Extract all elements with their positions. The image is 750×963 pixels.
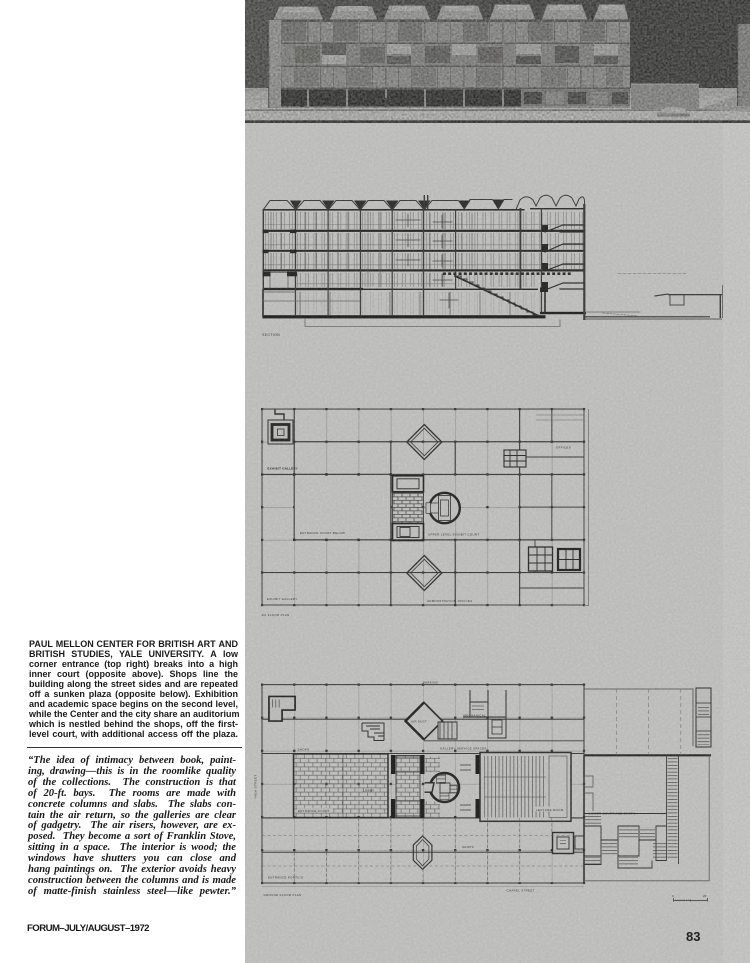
svg-text:MECHANICAL: MECHANICAL bbox=[464, 713, 486, 717]
svg-text:CHAPEL STREET: CHAPEL STREET bbox=[507, 888, 535, 892]
svg-text:ADMINISTRATION OFFICES: ADMINISTRATION OFFICES bbox=[427, 599, 473, 603]
svg-text:AIR DUCT: AIR DUCT bbox=[411, 720, 427, 724]
svg-text:PARKING: PARKING bbox=[423, 680, 439, 684]
svg-text:UPPER LEVEL EXHIBIT COURT: UPPER LEVEL EXHIBIT COURT bbox=[428, 533, 479, 537]
svg-text:HIGH STREET: HIGH STREET bbox=[254, 774, 258, 798]
svg-text:ENTRANCE COURT BELOW: ENTRANCE COURT BELOW bbox=[300, 531, 345, 535]
svg-text:0: 0 bbox=[672, 894, 674, 898]
svg-text:GALLERY SERVICE SPACES: GALLERY SERVICE SPACES bbox=[440, 747, 487, 751]
svg-text:LECTURE ROOM: LECTURE ROOM bbox=[536, 808, 564, 812]
svg-text:SECTION: SECTION bbox=[262, 333, 280, 337]
svg-text:EXHIBIT GALLERY: EXHIBIT GALLERY bbox=[268, 467, 299, 471]
svg-text:OFFICES: OFFICES bbox=[556, 446, 571, 450]
svg-text:GROUND FLOOR PLAN: GROUND FLOOR PLAN bbox=[264, 893, 302, 897]
svg-text:LOWER COURT AND SHOPS: LOWER COURT AND SHOPS bbox=[589, 812, 636, 816]
svg-text:4th FLOOR PLAN: 4th FLOOR PLAN bbox=[262, 613, 290, 617]
svg-text:SHOPS: SHOPS bbox=[298, 748, 310, 752]
svg-text:SHOPS: SHOPS bbox=[462, 845, 474, 849]
svg-text:ENTRANCE COURT: ENTRANCE COURT bbox=[298, 809, 330, 813]
svg-text:EXHIBIT GALLERY: EXHIBIT GALLERY bbox=[267, 597, 298, 601]
svg-text:ENTRANCE PORTICO: ENTRANCE PORTICO bbox=[268, 875, 304, 879]
svg-text:20': 20' bbox=[703, 894, 707, 898]
svg-text:LOBBY: LOBBY bbox=[363, 789, 374, 793]
